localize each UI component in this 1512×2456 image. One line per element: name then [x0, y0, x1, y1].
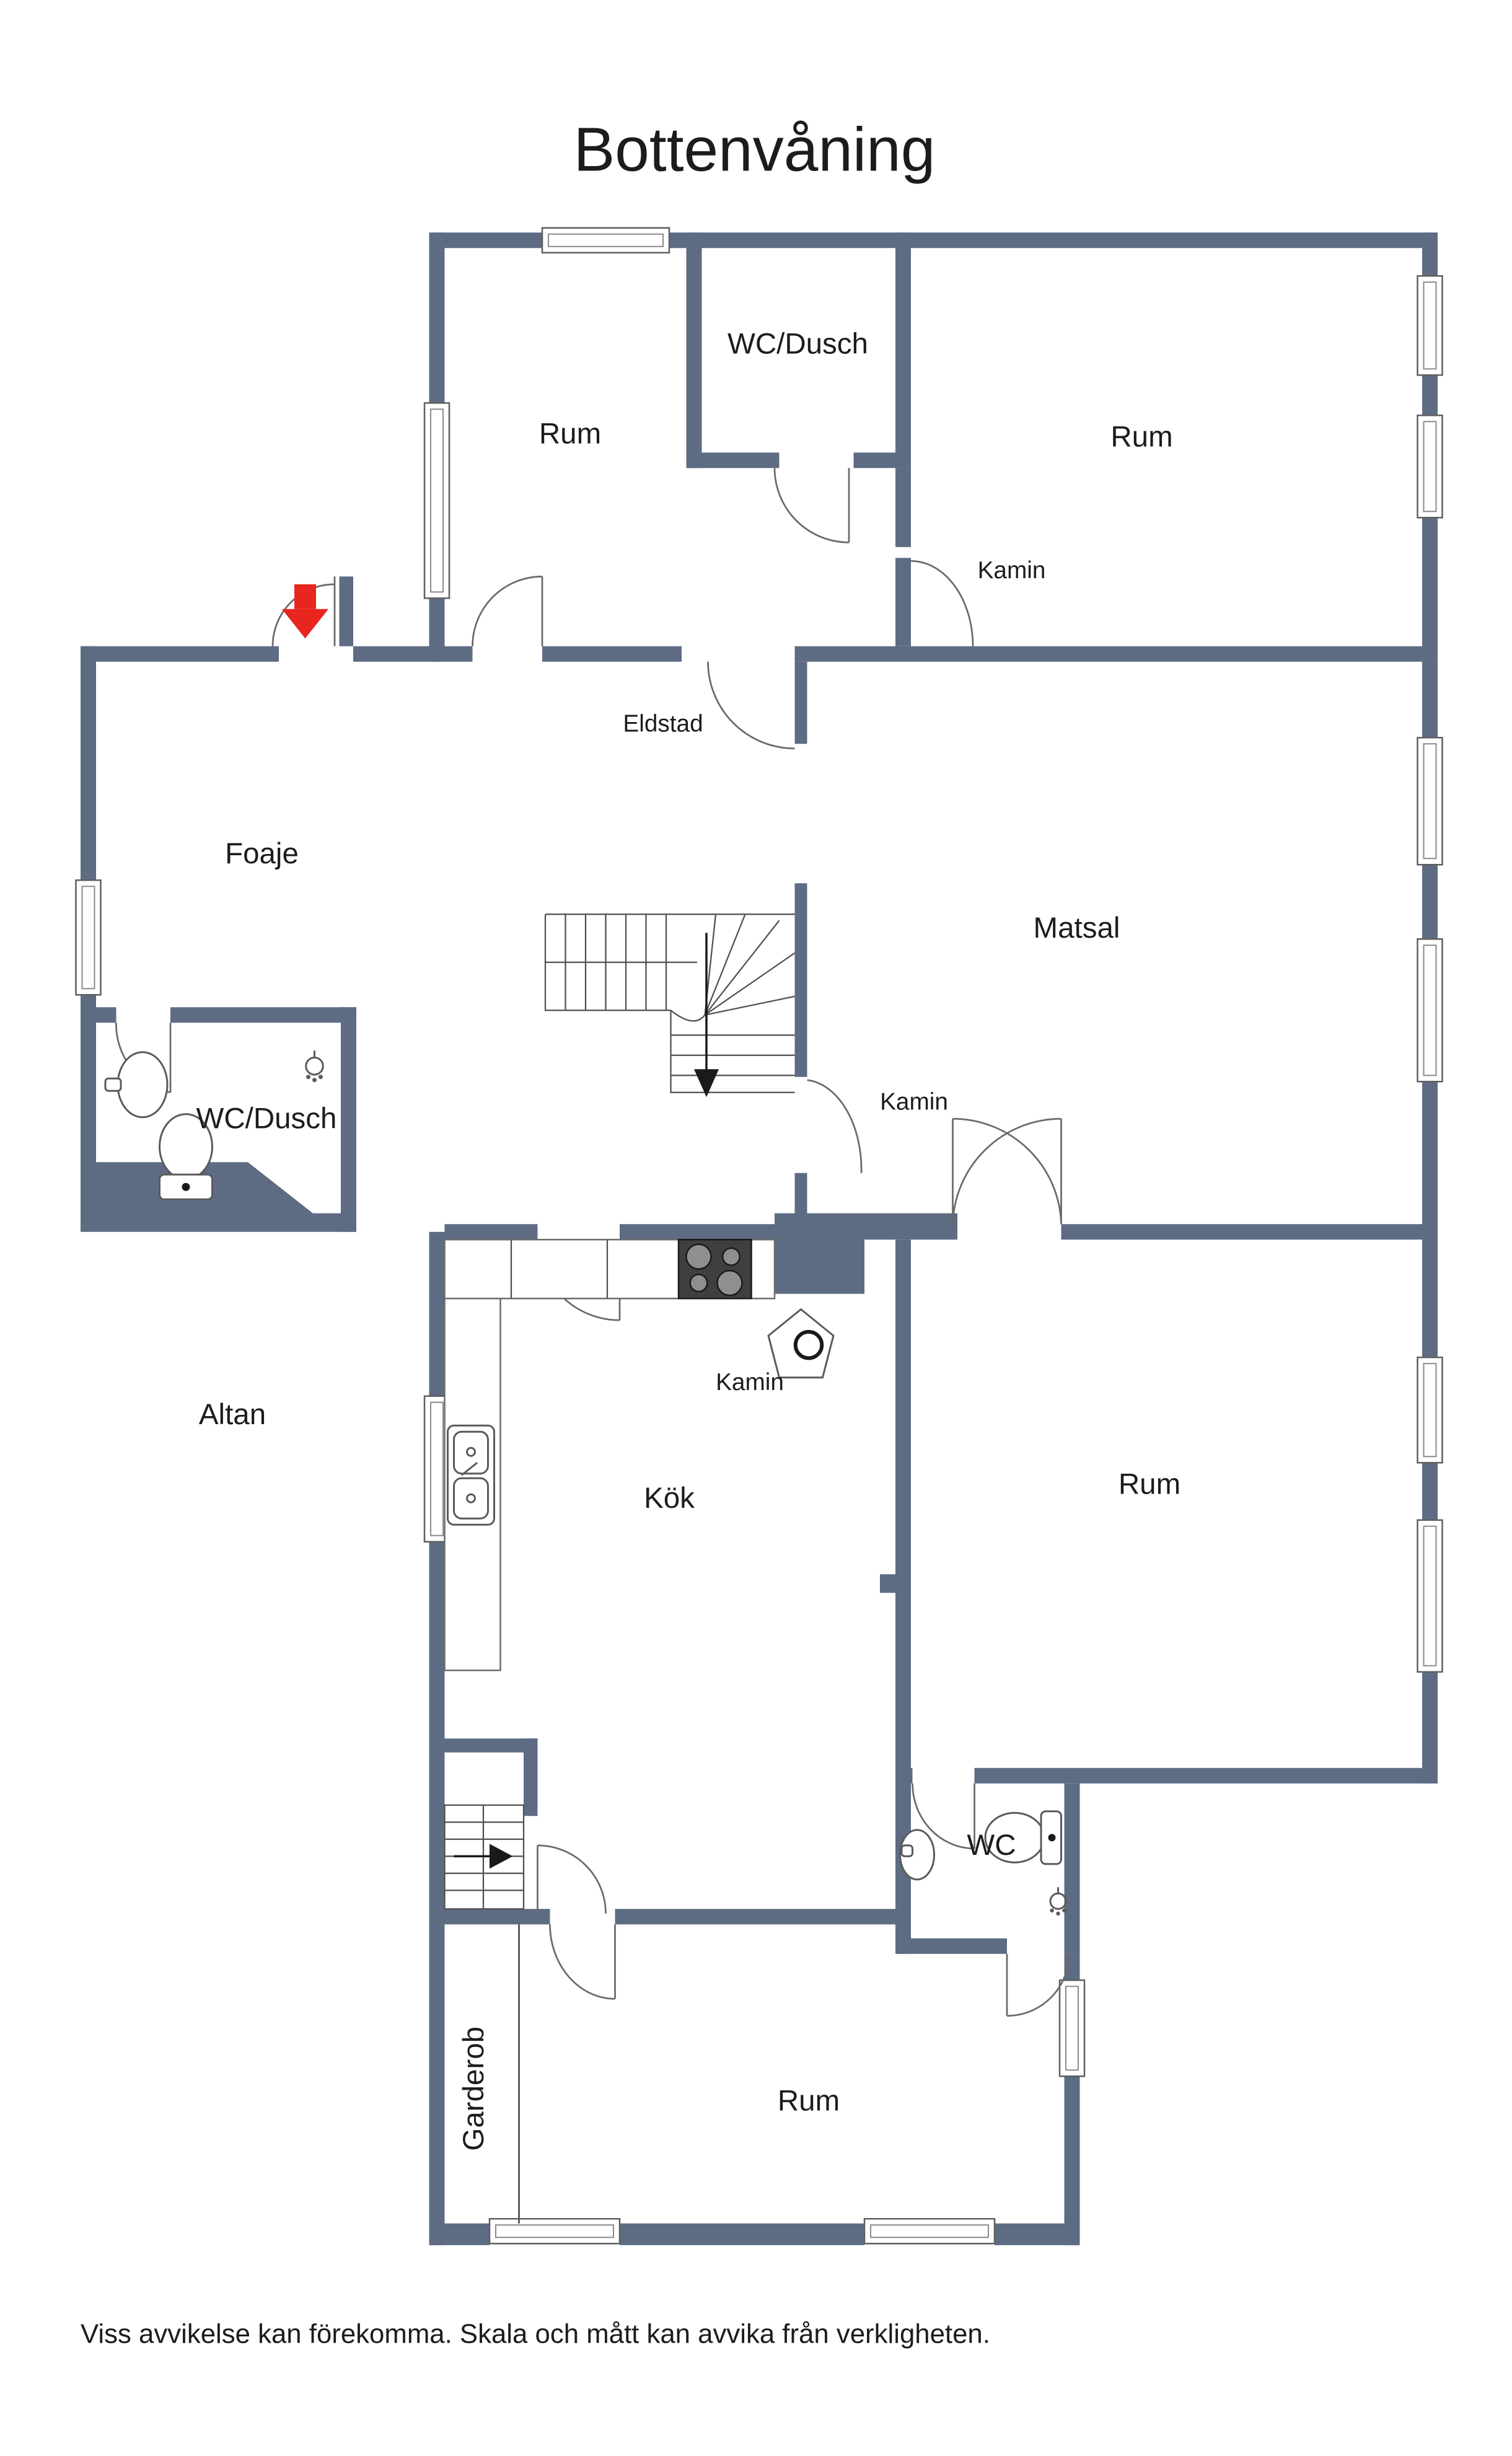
window [864, 2219, 995, 2243]
door-arc [775, 468, 849, 542]
basement-staircase [445, 1805, 524, 1909]
shower-icon [306, 1050, 323, 1082]
room-label-rum-top-right: Rum [1110, 420, 1172, 453]
floor-plan: Bottenvåning [0, 0, 1512, 2456]
annotation-kamin-stair: Kamin [880, 1088, 948, 1115]
window [1418, 415, 1443, 517]
shower-icon [1050, 1887, 1066, 1916]
window [1418, 737, 1443, 865]
room-label-wc: WC [967, 1829, 1016, 1862]
door-arc [807, 1080, 862, 1173]
room-label-rum-bottom: Rum [778, 2084, 840, 2117]
room-label-wc-dusch-left: WC/Dusch [196, 1102, 337, 1135]
door-arc [708, 662, 795, 749]
stairs-down-arrow-icon [694, 933, 719, 1097]
room-label-garderob: Garderob [457, 2027, 490, 2151]
sink-icon [900, 1830, 934, 1880]
sink-icon [105, 1052, 167, 1117]
room-label-wc-dusch-top: WC/Dusch [727, 327, 868, 360]
annotation-eldstad: Eldstad [623, 710, 703, 737]
window [424, 403, 449, 598]
main-staircase [545, 914, 795, 1097]
room-label-matsal: Matsal [1034, 912, 1120, 944]
entrance-arrow-icon [282, 584, 328, 639]
disclaimer-text: Viss avvikelse kan förekomma. Skala och … [81, 2318, 990, 2349]
door-arc [473, 576, 543, 646]
door-arc [538, 1846, 606, 1914]
double-door [953, 1119, 1061, 1224]
chimney-icon [768, 1309, 833, 1378]
window [1418, 276, 1443, 375]
stove-icon [679, 1239, 752, 1298]
window [1418, 1520, 1443, 1672]
room-label-foaje: Foaje [225, 837, 299, 870]
window [1060, 1980, 1084, 2076]
room-label-rum-right: Rum [1119, 1468, 1180, 1500]
page-title: Bottenvåning [574, 115, 936, 184]
door-arc [550, 1924, 615, 1999]
window [1418, 1357, 1443, 1463]
annotation-kamin-top-right: Kamin [978, 557, 1046, 584]
room-label-kok: Kök [644, 1482, 695, 1515]
window [490, 2219, 620, 2243]
kitchen-sink-icon [448, 1425, 494, 1525]
door-arc [911, 561, 973, 646]
window [542, 228, 669, 253]
window [76, 880, 101, 995]
annotation-kamin-kok: Kamin [716, 1369, 784, 1396]
window [1418, 939, 1443, 1081]
room-label-rum-top-left: Rum [539, 417, 601, 450]
room-label-altan: Altan [199, 1398, 266, 1431]
